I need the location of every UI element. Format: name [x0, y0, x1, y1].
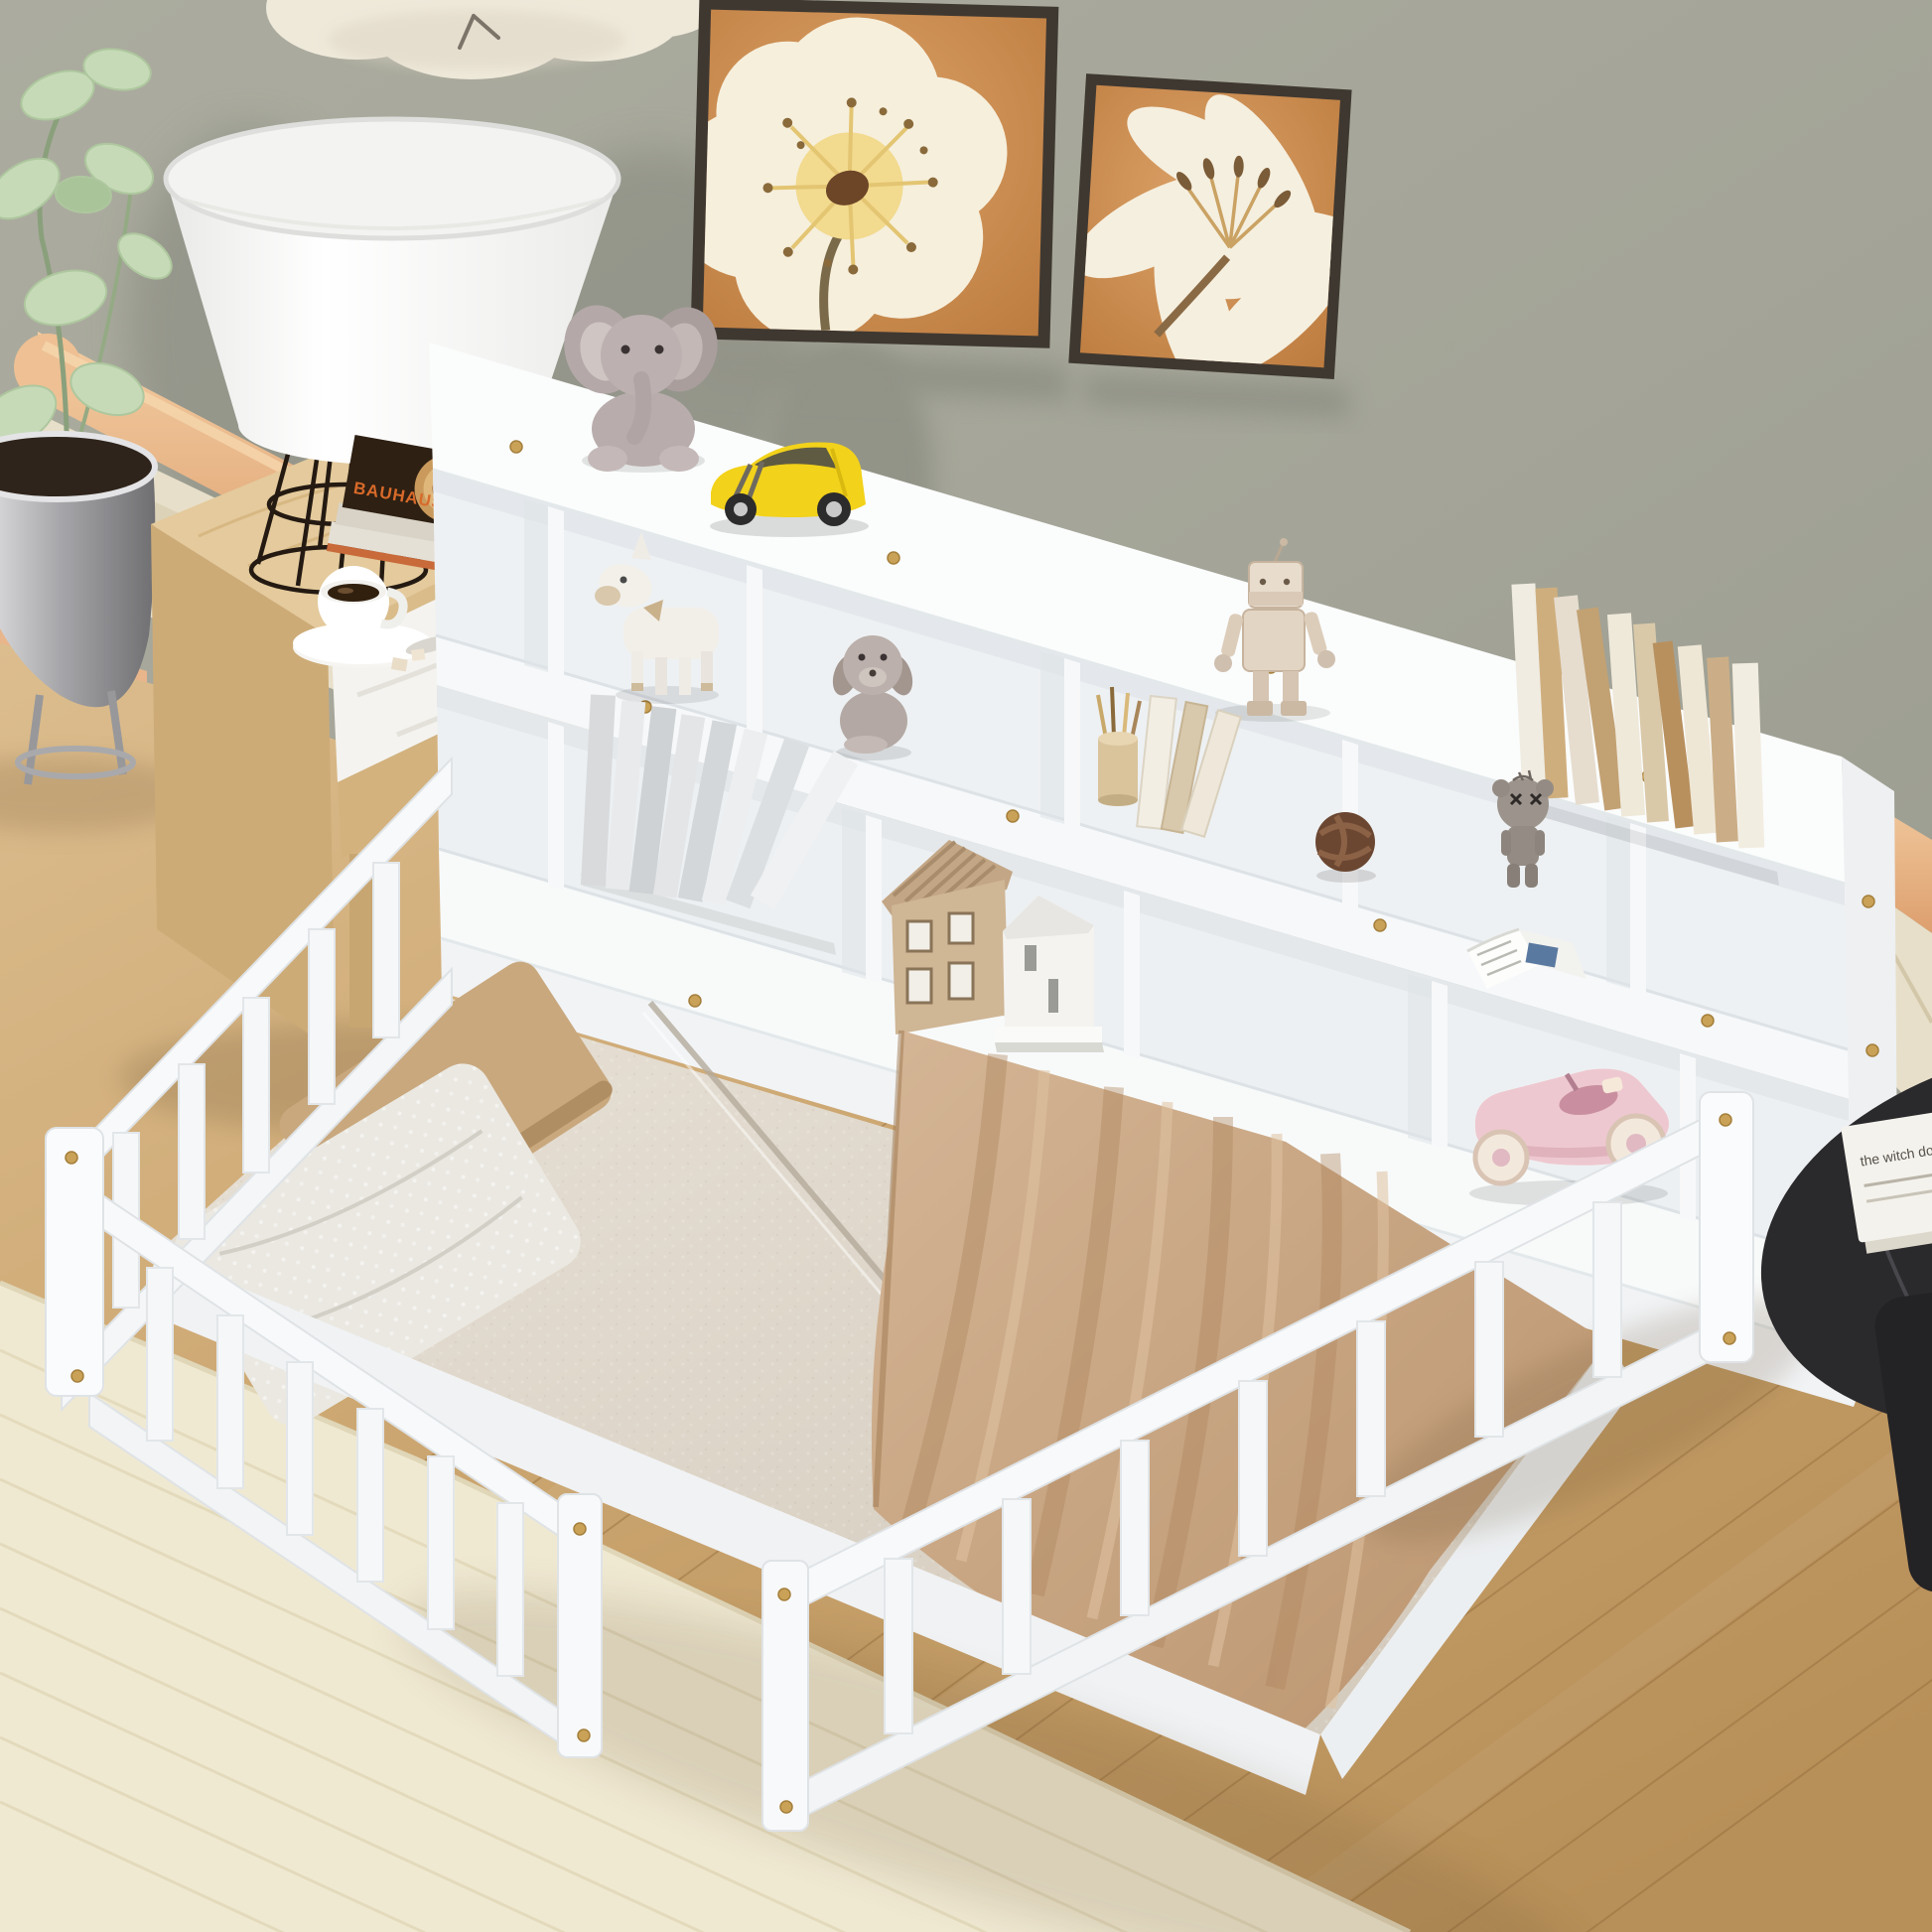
foot-rail-stile [762, 1561, 808, 1831]
wood-house-body [892, 880, 1009, 1035]
corner-post-right [1700, 1092, 1753, 1362]
sugar-cube [411, 648, 425, 661]
scene-canvas: BAUHAUS [0, 0, 1932, 1932]
corner-post-left [46, 1128, 103, 1396]
bedroom-photo: BAUHAUS [0, 0, 1932, 1932]
flower-art-left [664, 0, 1058, 348]
sugar-cube [391, 657, 408, 671]
knot-ball [1315, 812, 1376, 883]
